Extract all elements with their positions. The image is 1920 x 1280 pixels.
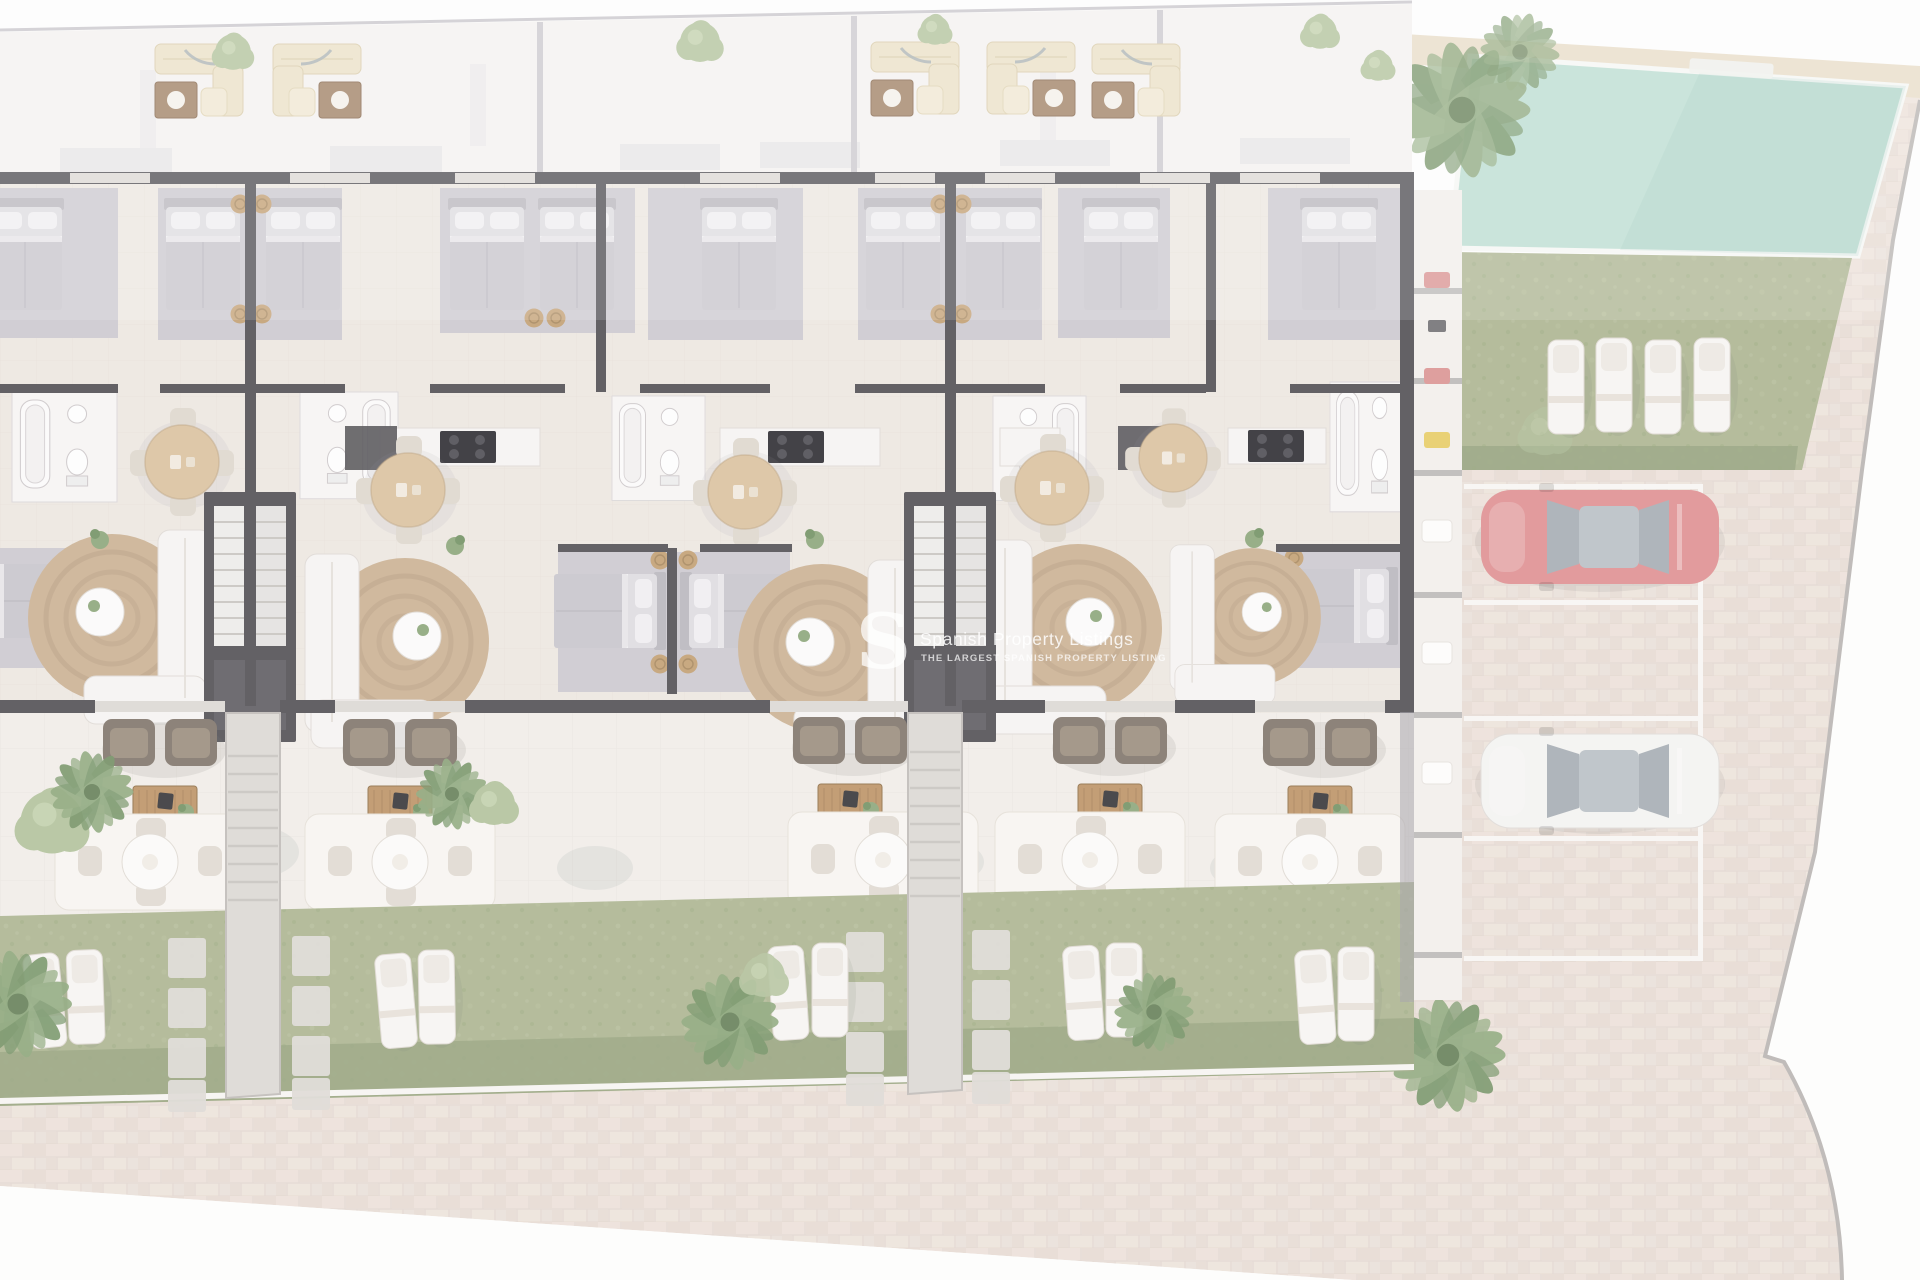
watermark-title: Spanish Property Listings <box>920 629 1133 649</box>
haze-top <box>0 0 1920 320</box>
watermark-subtitle: THE LARGEST SPANISH PROPERTY LISTING <box>921 653 1167 664</box>
watermark-s-logo-icon: S <box>856 597 909 686</box>
floorplan-render: S Spanish Property Listings THE LARGEST … <box>0 0 1920 1280</box>
